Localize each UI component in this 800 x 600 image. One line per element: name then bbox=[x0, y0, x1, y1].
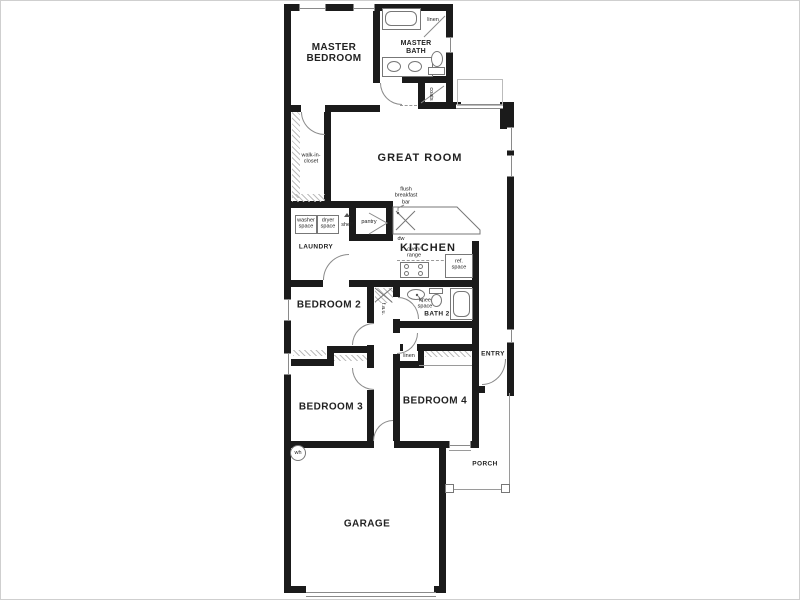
label-fau: f.a.u. bbox=[380, 303, 386, 315]
door-arc bbox=[301, 112, 325, 135]
door-opening bbox=[301, 105, 325, 112]
door-opening bbox=[374, 441, 394, 448]
window-sill-line bbox=[449, 450, 471, 451]
label-washer-space: washer space bbox=[297, 218, 315, 231]
fau-hatch bbox=[375, 288, 393, 303]
wall bbox=[284, 201, 393, 208]
wall bbox=[291, 359, 331, 366]
porch-post bbox=[501, 484, 510, 493]
sink bbox=[408, 61, 422, 72]
label-linen: linen bbox=[427, 17, 439, 23]
window bbox=[446, 37, 453, 53]
wall bbox=[324, 108, 331, 208]
toilet-bowl bbox=[431, 51, 443, 67]
room-label-master-bath: MASTER BATH bbox=[401, 40, 432, 56]
window bbox=[507, 127, 514, 151]
patio-outline bbox=[457, 79, 503, 106]
closet-rod-hatch bbox=[292, 112, 300, 198]
wall bbox=[367, 287, 374, 441]
wall bbox=[349, 234, 393, 241]
door-opening bbox=[323, 280, 349, 287]
sink-basin bbox=[421, 213, 433, 226]
door-arc bbox=[482, 359, 506, 385]
label-dryer-space: dryer space bbox=[321, 218, 336, 231]
door-arc bbox=[398, 297, 419, 319]
wall bbox=[373, 4, 380, 83]
burner bbox=[418, 264, 423, 269]
window bbox=[284, 353, 291, 375]
label-coats: coats bbox=[428, 87, 434, 100]
room-label-bedroom2: BEDROOM 2 bbox=[297, 299, 361, 310]
wall bbox=[393, 321, 479, 328]
label-ref-space: ref. space bbox=[452, 259, 467, 272]
wall bbox=[439, 441, 446, 593]
toilet-bowl bbox=[431, 294, 442, 307]
wall bbox=[327, 346, 334, 366]
sink-basin bbox=[435, 213, 446, 226]
closet-rod-hatch bbox=[334, 355, 367, 361]
opening-dashed-line bbox=[400, 105, 417, 107]
wall bbox=[472, 241, 479, 448]
window bbox=[299, 4, 326, 11]
sink bbox=[387, 61, 401, 72]
porch-post bbox=[445, 484, 454, 493]
door-arc bbox=[323, 254, 349, 280]
wall bbox=[284, 105, 380, 112]
toilet-tank bbox=[428, 67, 445, 75]
room-label-garage: GARAGE bbox=[344, 518, 390, 529]
shelf-arrow-icon bbox=[344, 213, 350, 217]
closet-rod-hatch bbox=[425, 351, 471, 357]
room-label-bedroom4: BEDROOM 4 bbox=[403, 395, 467, 406]
label-shelf: shelf bbox=[341, 222, 353, 228]
door-arc bbox=[352, 323, 374, 345]
bathtub-basin bbox=[385, 11, 417, 26]
label-flush-breakfast-bar: flush breakfast bar bbox=[395, 187, 418, 206]
label-pantry: pantry bbox=[361, 219, 376, 225]
room-label-bedroom3: BEDROOM 3 bbox=[299, 401, 363, 412]
room-label-entry: ENTRY bbox=[481, 350, 505, 357]
door-opening bbox=[485, 386, 507, 393]
label-wh: wh bbox=[294, 450, 301, 456]
wall bbox=[400, 361, 419, 368]
room-label-great-room: GREAT ROOM bbox=[378, 152, 463, 164]
window bbox=[284, 299, 291, 321]
room-label-bath2: BATH 2 bbox=[424, 310, 449, 317]
closet-front-line bbox=[419, 365, 472, 366]
window bbox=[353, 4, 375, 11]
window bbox=[507, 329, 514, 343]
closet-rod-hatch bbox=[292, 194, 325, 202]
label-porch: PORCH bbox=[472, 460, 497, 467]
wall bbox=[418, 102, 461, 109]
label-oven-range: oven/ range bbox=[407, 247, 421, 260]
room-label-laundry: LAUNDRY bbox=[299, 243, 333, 250]
wall bbox=[284, 280, 479, 287]
window bbox=[507, 155, 514, 177]
door-arc bbox=[352, 368, 374, 390]
burner bbox=[404, 264, 409, 269]
dishwasher bbox=[395, 210, 416, 231]
porch-edge bbox=[509, 393, 510, 490]
wall bbox=[446, 4, 453, 109]
closet-rod-hatch bbox=[293, 350, 326, 356]
door-arc bbox=[373, 420, 393, 441]
door-opening bbox=[380, 76, 402, 83]
floor-plan: MASTER BEDROOM MASTER BATH linen coats w… bbox=[0, 0, 800, 600]
door-arc bbox=[380, 83, 402, 105]
label-knee-space: knee space bbox=[418, 298, 433, 311]
garage-door bbox=[306, 592, 436, 597]
window bbox=[449, 441, 471, 448]
label-linen-hall: linen bbox=[403, 353, 415, 359]
burner bbox=[404, 271, 409, 276]
bathtub-basin bbox=[453, 291, 470, 317]
wall bbox=[331, 346, 371, 353]
label-walk-in-closet: walk-in- closet bbox=[302, 153, 321, 166]
room-label-master-bedroom: MASTER BEDROOM bbox=[306, 42, 361, 64]
burner bbox=[418, 271, 423, 276]
